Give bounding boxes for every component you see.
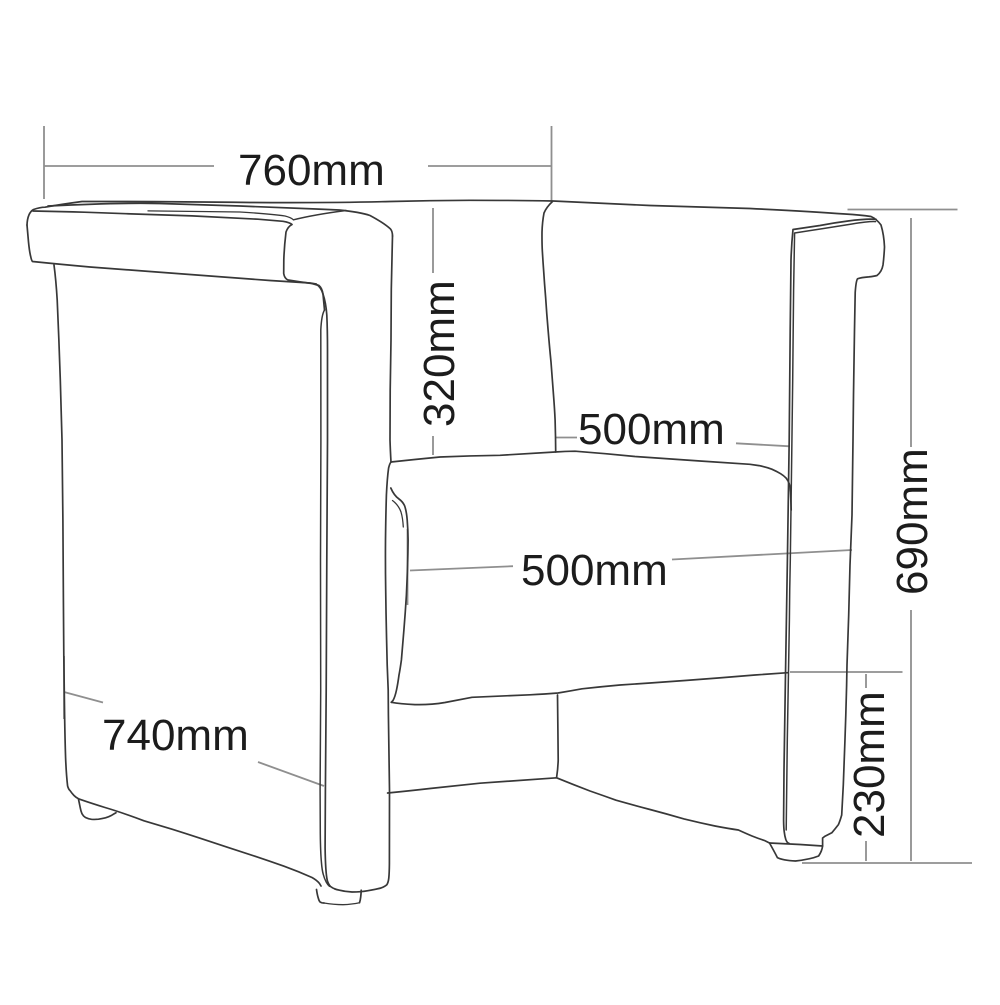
svg-text:760mm: 760mm (238, 146, 385, 195)
svg-text:230mm: 230mm (845, 691, 894, 838)
svg-text:740mm: 740mm (102, 711, 249, 760)
svg-text:500mm: 500mm (578, 405, 725, 454)
svg-text:690mm: 690mm (888, 448, 937, 595)
svg-text:320mm: 320mm (415, 280, 464, 427)
svg-text:500mm: 500mm (521, 546, 668, 595)
